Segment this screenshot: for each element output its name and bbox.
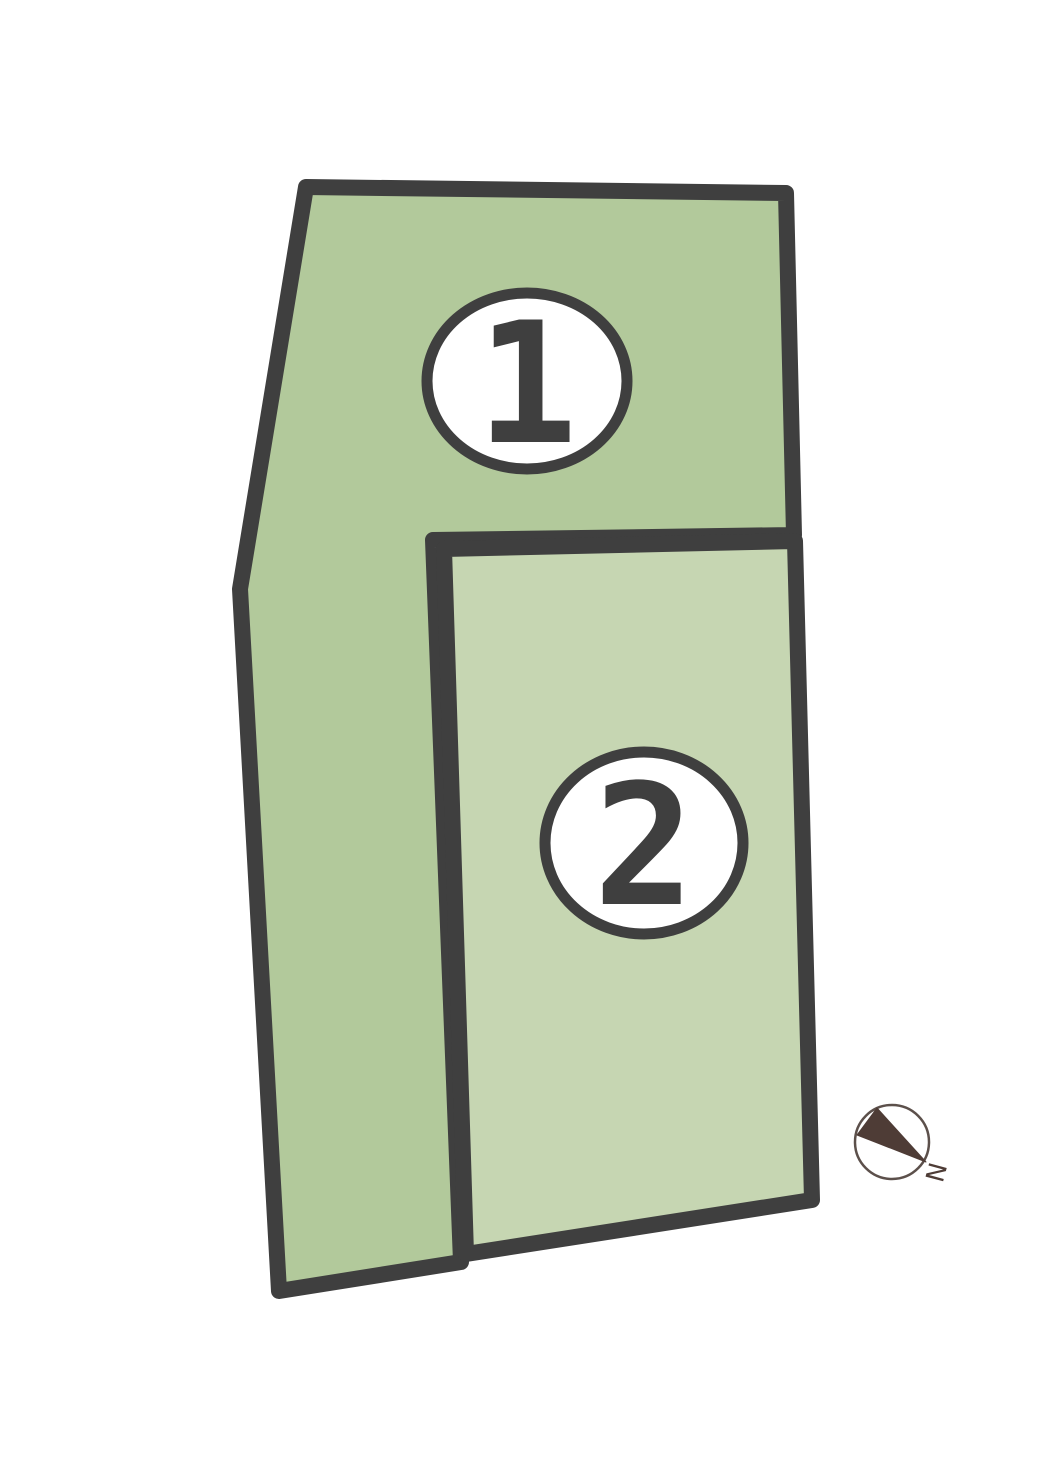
site-plan-page: 1 2 N xyxy=(0,0,1040,1477)
site-plan-svg: 1 2 N xyxy=(0,0,1040,1477)
parcel-2-label: 2 xyxy=(593,748,694,944)
compass-north-label: N xyxy=(919,1159,952,1185)
compass-north-indicator: N xyxy=(855,1105,952,1185)
parcel-2-badge: 2 xyxy=(545,748,743,944)
parcel-1-label: 1 xyxy=(476,286,577,482)
